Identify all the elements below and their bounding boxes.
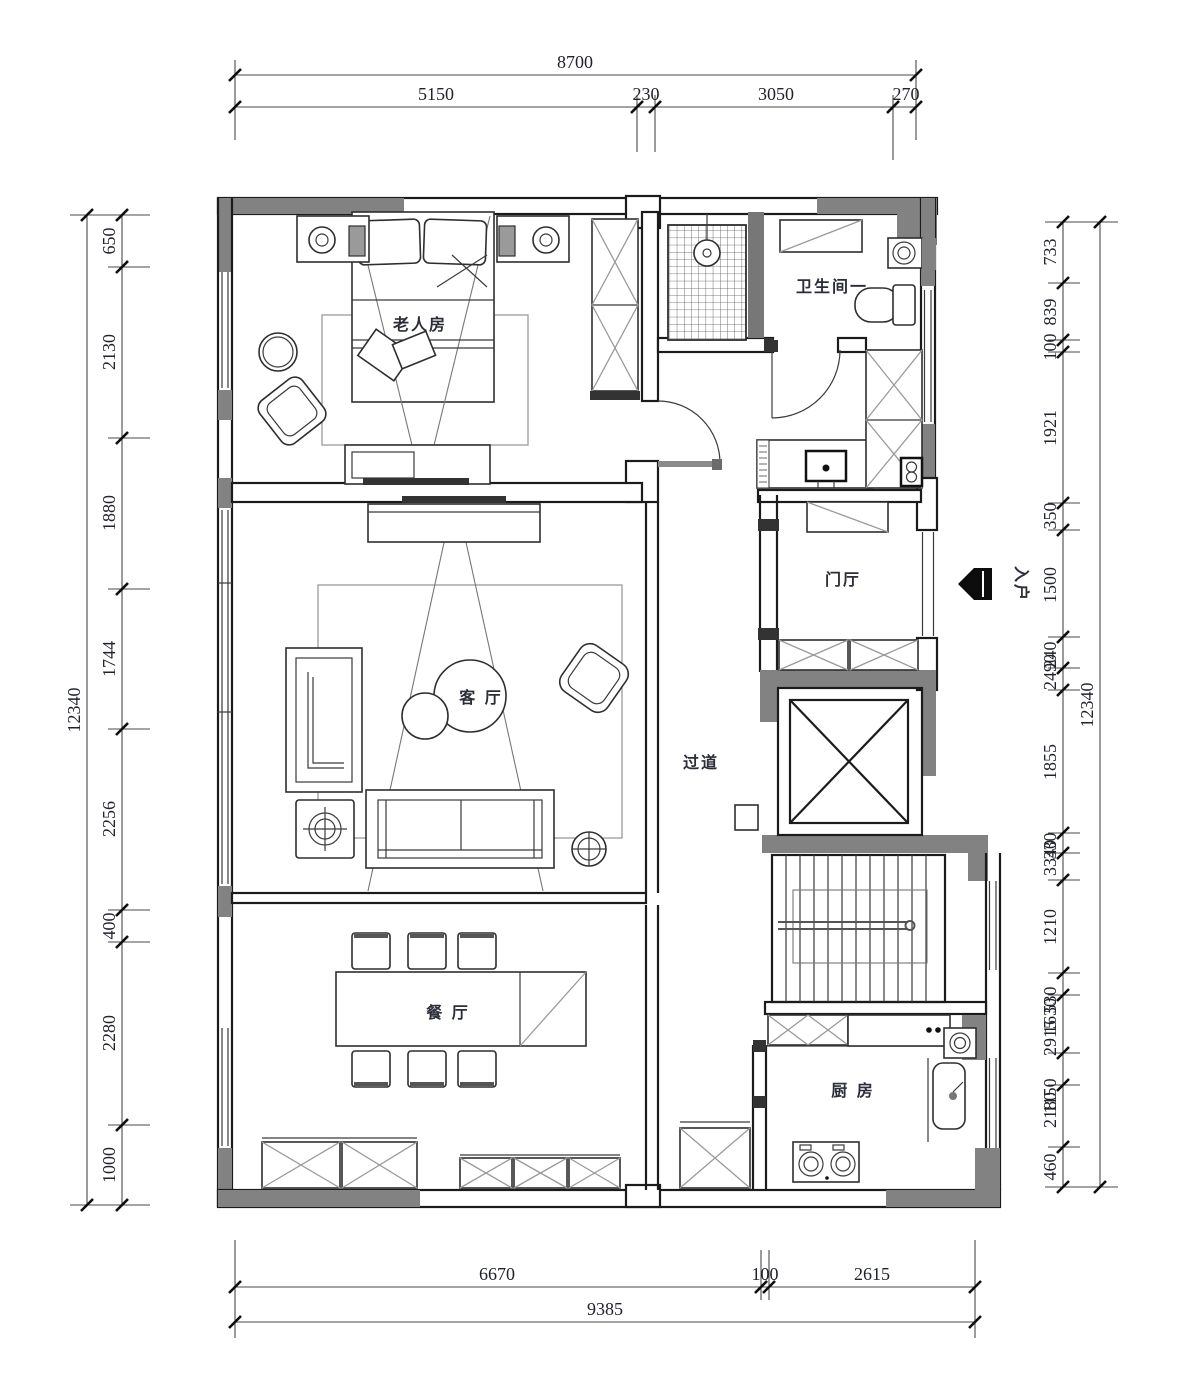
stairs [772,855,945,1002]
dining-cabinets [262,1138,620,1188]
dim-right-seg: 350 [1040,503,1060,530]
coffee-table-small [402,693,448,739]
nightstand-right [497,216,569,262]
bathroom-door [766,340,840,418]
room-label-bedroom: 老人房 [392,315,447,334]
dim-right-seg: 460 [1040,1154,1060,1181]
dimension-chain-left: 12340 650 2130 1880 1744 2256 400 2280 1… [64,209,150,1211]
floor-plan-page: 8700 5150 230 3050 270 12340 650 2130 18… [0,0,1200,1377]
entry-label: 入户 [1012,566,1031,602]
dim-top-seg: 3050 [758,84,794,104]
dim-top-total: 8700 [557,52,593,72]
dining-chairs-top [352,933,496,969]
foyer-cabinets [779,640,918,670]
corridor-cabinet [680,1122,750,1188]
bedroom-armchair [254,373,330,449]
dim-top-seg: 270 [893,84,920,104]
dim-left-seg: 1000 [99,1147,119,1183]
dim-right-seg: 3340 [1040,840,1060,876]
wardrobe [590,219,640,400]
dim-left-seg: 1880 [99,495,119,531]
shoe-cabinet [807,502,888,532]
dim-left-seg: 2256 [99,801,119,837]
dim-left-total: 12340 [64,688,84,733]
entry-marker: 入户 [958,566,1031,602]
room-living: 客 厅 [286,504,633,891]
room-label-kitchen: 厨 房 [831,1081,875,1100]
living-side-table [296,800,354,858]
dim-left-seg: 2130 [99,334,119,370]
bedroom-side-table [259,333,297,371]
dim-right-seg: 1500 [1040,567,1060,603]
window-kitchen [990,1058,997,1148]
dimension-chain-right: 12340 733 839 100 1921 350 1500 240 2490… [1040,216,1118,1193]
corridor-box [735,805,758,830]
floor-lamp [572,832,606,866]
room-label-dining: 餐 厅 [425,1003,470,1022]
dim-right-seg: 1210 [1040,909,1060,945]
living-armchair [555,639,633,717]
window-left-bedroom [222,272,228,388]
dim-bottom-total: 9385 [587,1299,623,1319]
stair-handrail [778,921,915,930]
bed [352,212,494,478]
dim-right-seg: 2915 [1040,1020,1060,1056]
dim-right-seg: 733 [1040,239,1060,266]
entry-door-opening [923,532,934,636]
entry-arrow-icon [958,568,992,600]
window-left-living [218,510,232,884]
window-stairs [990,881,997,970]
kitchen-side-counter [928,1058,965,1142]
living-tv-cabinet [368,504,540,542]
dim-right-seg: 1855 [1040,744,1060,780]
window-bathroom [925,290,932,422]
dim-bottom-seg: 2615 [854,1264,890,1284]
dim-bottom-seg: 6670 [479,1264,515,1284]
floor-plan-drawing: 8700 5150 230 3050 270 12340 650 2130 18… [0,0,1200,1377]
chaise [286,648,362,792]
dim-left-seg: 650 [99,228,119,255]
dim-top-seg: 5150 [418,84,454,104]
room-corridor: 过道 [680,753,758,1188]
dim-right-seg: 100 [1040,334,1060,361]
room-label-corridor: 过道 [683,753,719,772]
nightstand-left [297,216,369,262]
bathroom-basin [888,238,936,270]
tall-cabinet [866,350,922,488]
bedroom-door [658,401,722,470]
dining-chairs-bottom [352,1051,496,1087]
hall-niche [757,350,922,488]
room-label-living: 客 厅 [459,688,503,707]
shower-drain [694,240,720,266]
bathroom-vanity [780,220,862,252]
room-label-foyer: 门厅 [825,570,861,589]
stair-void [793,890,927,963]
room-foyer: 门厅 [779,502,918,670]
stove [793,1142,859,1182]
window-left-dining [222,1028,228,1146]
sofa [366,790,554,868]
room-kitchen: 厨 房 [766,1015,986,1182]
elevator [778,688,922,835]
dim-right-total: 12340 [1077,683,1097,728]
dim-left-seg: 400 [99,913,119,940]
dim-right-seg: 2180 [1040,1092,1060,1128]
dim-right-seg: 839 [1040,299,1060,326]
dim-left-seg: 2280 [99,1015,119,1051]
dimension-chain-bottom: 6670 100 2615 9385 [229,1240,981,1338]
dim-bottom-seg: 100 [752,1264,779,1284]
room-label-bathroom: 卫生间一 [796,277,868,296]
dim-right-seg: 1921 [1040,410,1060,446]
dimension-chain-top: 8700 5150 230 3050 270 [229,52,922,160]
dim-right-seg: 2490 [1040,654,1060,690]
dim-top-seg: 230 [633,84,660,104]
kitchen-upper-cabinets [768,1015,848,1045]
dim-left-seg: 1744 [99,641,119,677]
room-dining: 餐 厅 [262,933,620,1188]
bedroom-tv-cabinet [345,445,490,485]
